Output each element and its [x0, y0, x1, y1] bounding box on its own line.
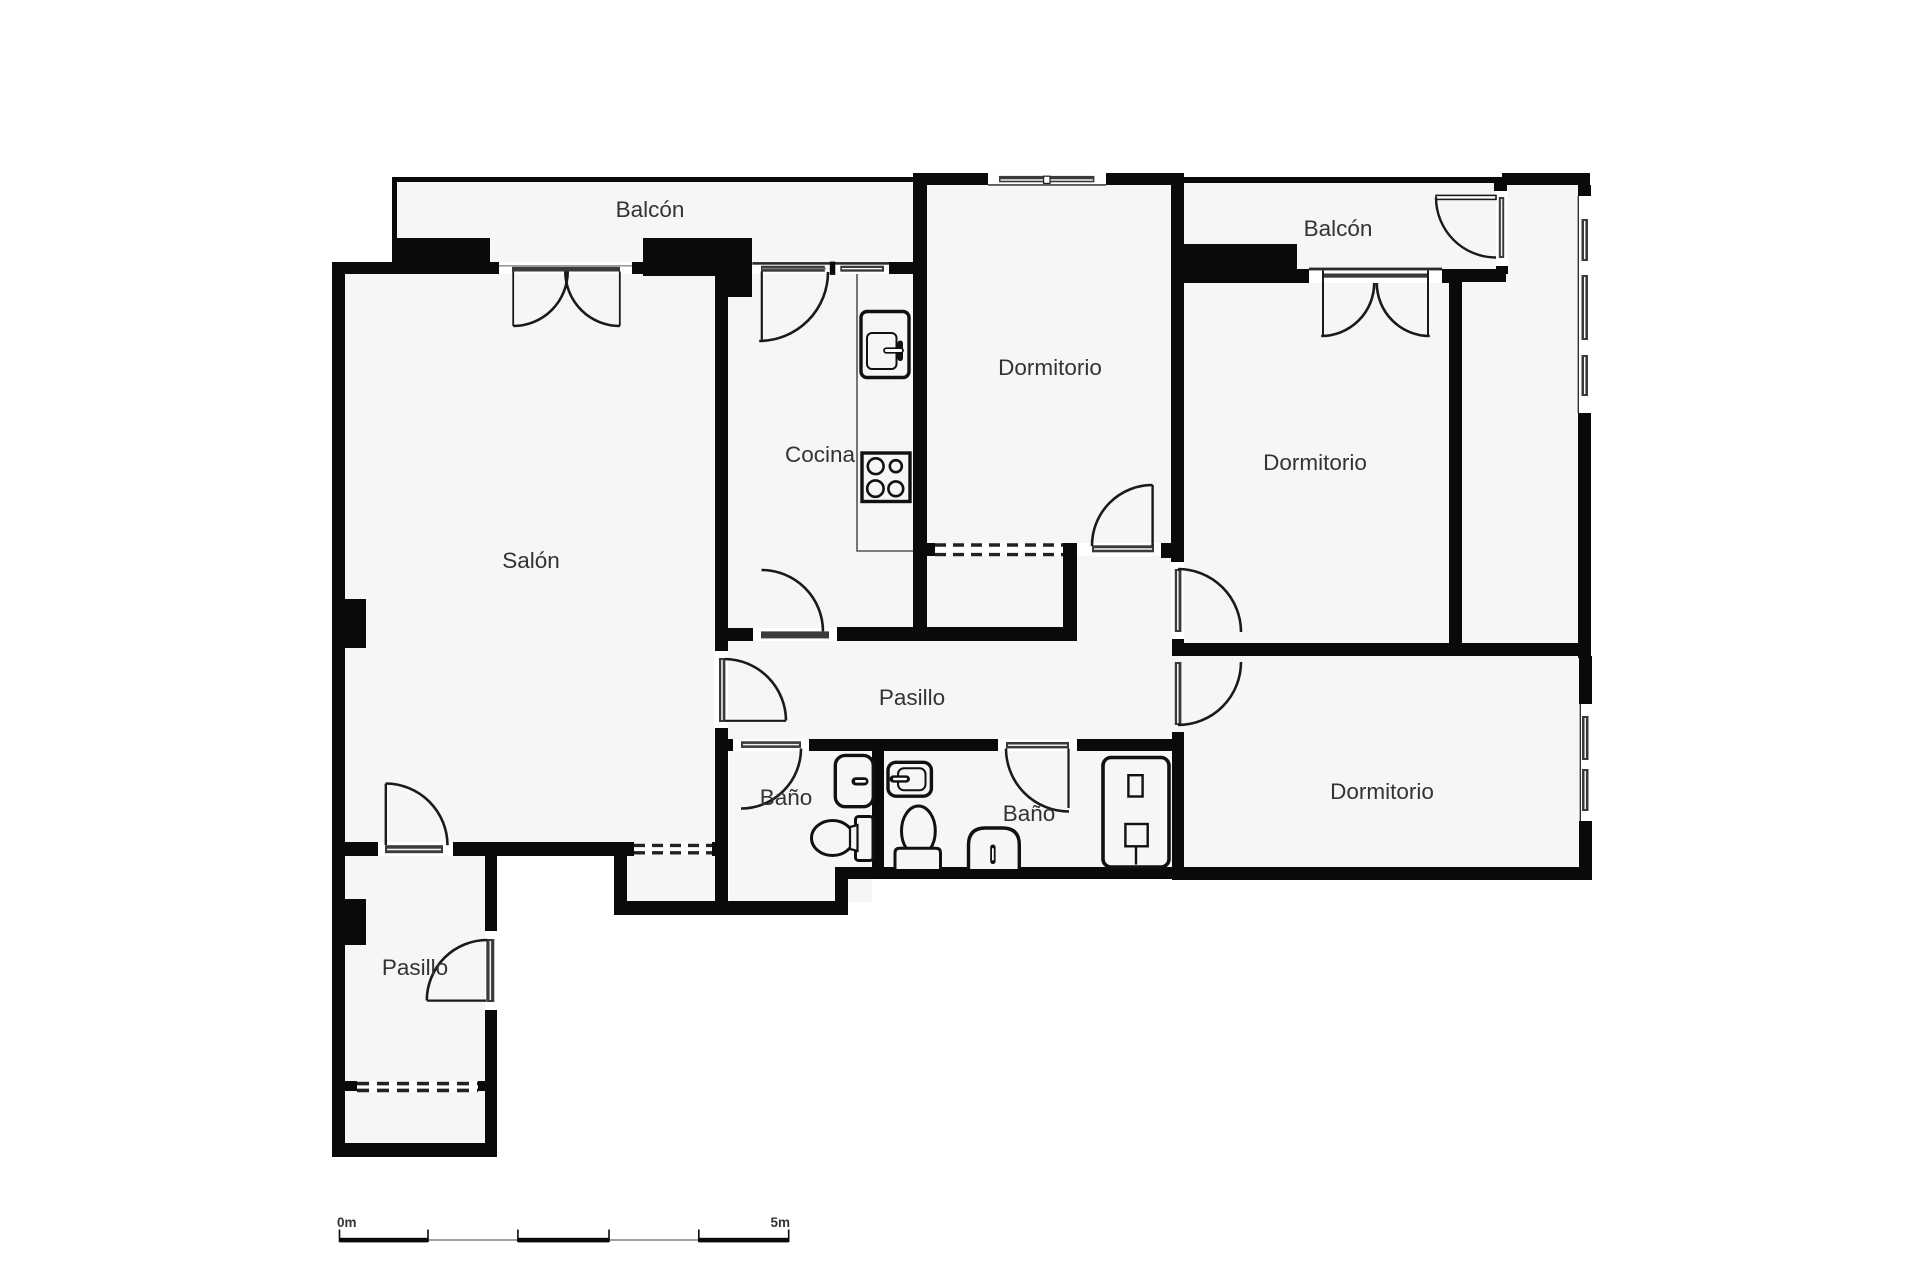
svg-text:Dormitorio: Dormitorio: [1330, 779, 1434, 804]
svg-text:Pasillo: Pasillo: [879, 685, 945, 710]
svg-text:Cocina: Cocina: [785, 442, 856, 467]
svg-text:0m: 0m: [337, 1215, 357, 1230]
svg-text:Balcón: Balcón: [1304, 216, 1373, 241]
svg-text:Baño: Baño: [760, 785, 813, 810]
svg-text:Dormitorio: Dormitorio: [1263, 450, 1367, 475]
svg-text:Dormitorio: Dormitorio: [998, 355, 1102, 380]
svg-text:5m: 5m: [770, 1215, 790, 1230]
svg-text:Balcón: Balcón: [616, 197, 685, 222]
svg-text:Pasillo: Pasillo: [382, 955, 448, 980]
svg-text:Baño: Baño: [1003, 801, 1056, 826]
svg-text:Salón: Salón: [502, 548, 560, 573]
